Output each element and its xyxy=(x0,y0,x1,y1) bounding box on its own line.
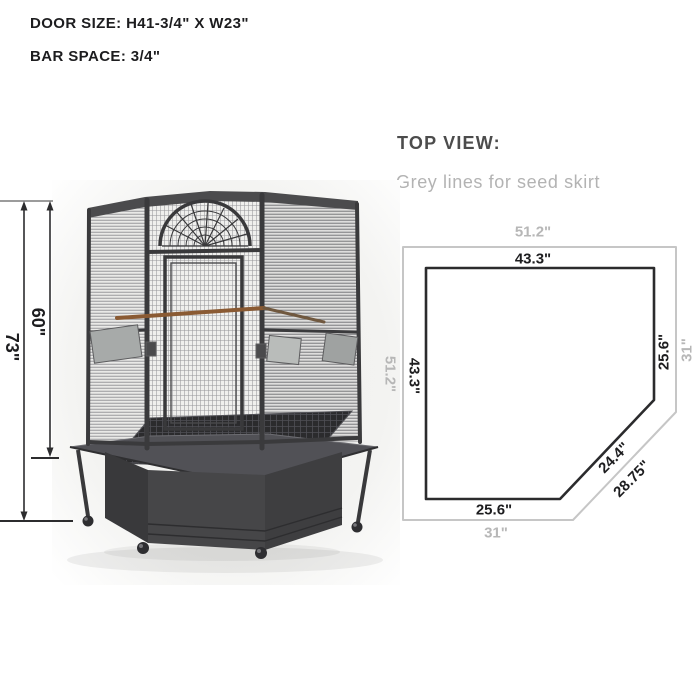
top-view-diagram: 51.2" 51.2" 31" 31" 28.75" 43.3" 43.3" 2… xyxy=(380,220,700,550)
top-view-subtitle: Grey lines for seed skirt xyxy=(396,172,600,193)
outer-top-dim: 51.2" xyxy=(515,224,551,241)
outer-right-dim: 31" xyxy=(679,338,696,362)
cage-height-label: 60" xyxy=(28,308,48,337)
cage-photo-figure: 73" 60" xyxy=(0,180,400,595)
caster-right xyxy=(352,522,363,533)
caster-left xyxy=(83,516,94,527)
door-size-spec: DOOR SIZE: H41-3/4" X W23" xyxy=(30,15,249,32)
inner-left-dim: 43.3" xyxy=(406,358,423,394)
product-dimension-sheet: DOOR SIZE: H41-3/4" X W23" BAR SPACE: 3/… xyxy=(0,0,700,700)
caster-front-left xyxy=(137,542,149,554)
cage-left-panel xyxy=(88,202,147,445)
inner-top-dim: 43.3" xyxy=(515,251,551,268)
bar-space-spec: BAR SPACE: 3/4" xyxy=(30,48,160,65)
inner-right-dim: 25.6" xyxy=(656,334,673,370)
top-view-title: TOP VIEW: xyxy=(397,133,501,154)
outer-bottom-dim: 31" xyxy=(484,525,508,542)
outer-left-dim: 51.2" xyxy=(382,356,399,392)
cage-footprint-outline xyxy=(426,268,654,499)
total-height-label: 73" xyxy=(2,333,22,362)
caster-front-right xyxy=(255,547,267,559)
inner-bottom-dim: 25.6" xyxy=(476,502,512,519)
